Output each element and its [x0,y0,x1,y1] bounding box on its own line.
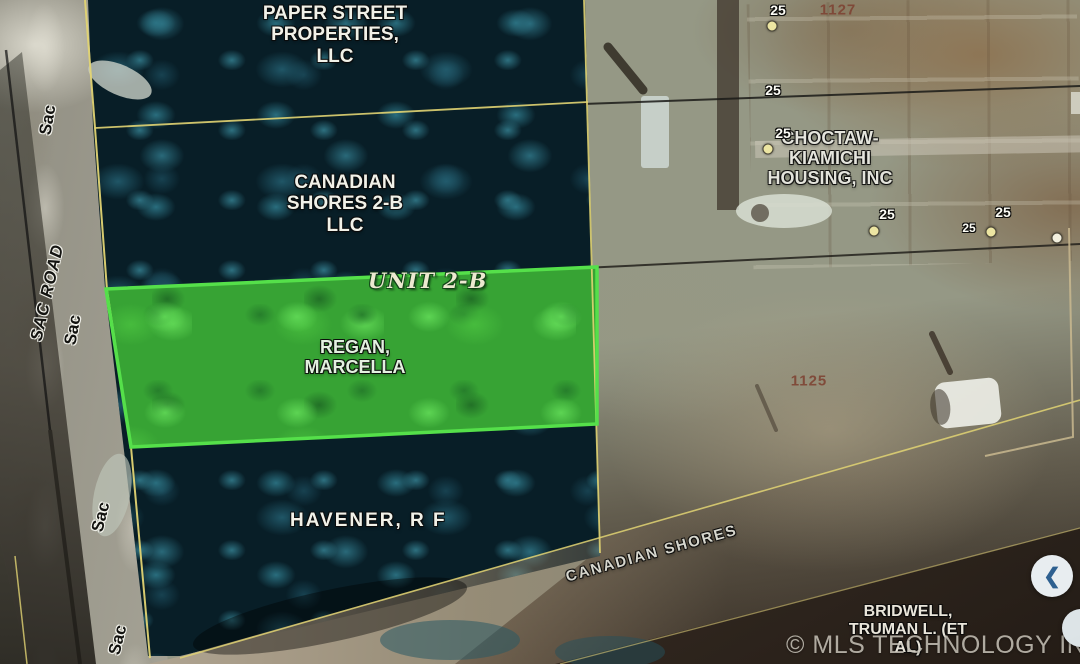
chevron-left-icon: ❮ [1043,564,1061,589]
map-canvas[interactable]: PAPER STREET PROPERTIES, LLC CANADIAN SH… [0,0,1080,664]
ref-numbers-layer: 11271125 [0,0,1080,664]
back-chevron-button[interactable]: ❮ [1031,555,1073,597]
mls-watermark: © MLS TECHNOLOGY INC 2025 [786,631,1080,660]
reference-number: 1125 [791,373,828,390]
reference-number: 1127 [820,2,857,19]
